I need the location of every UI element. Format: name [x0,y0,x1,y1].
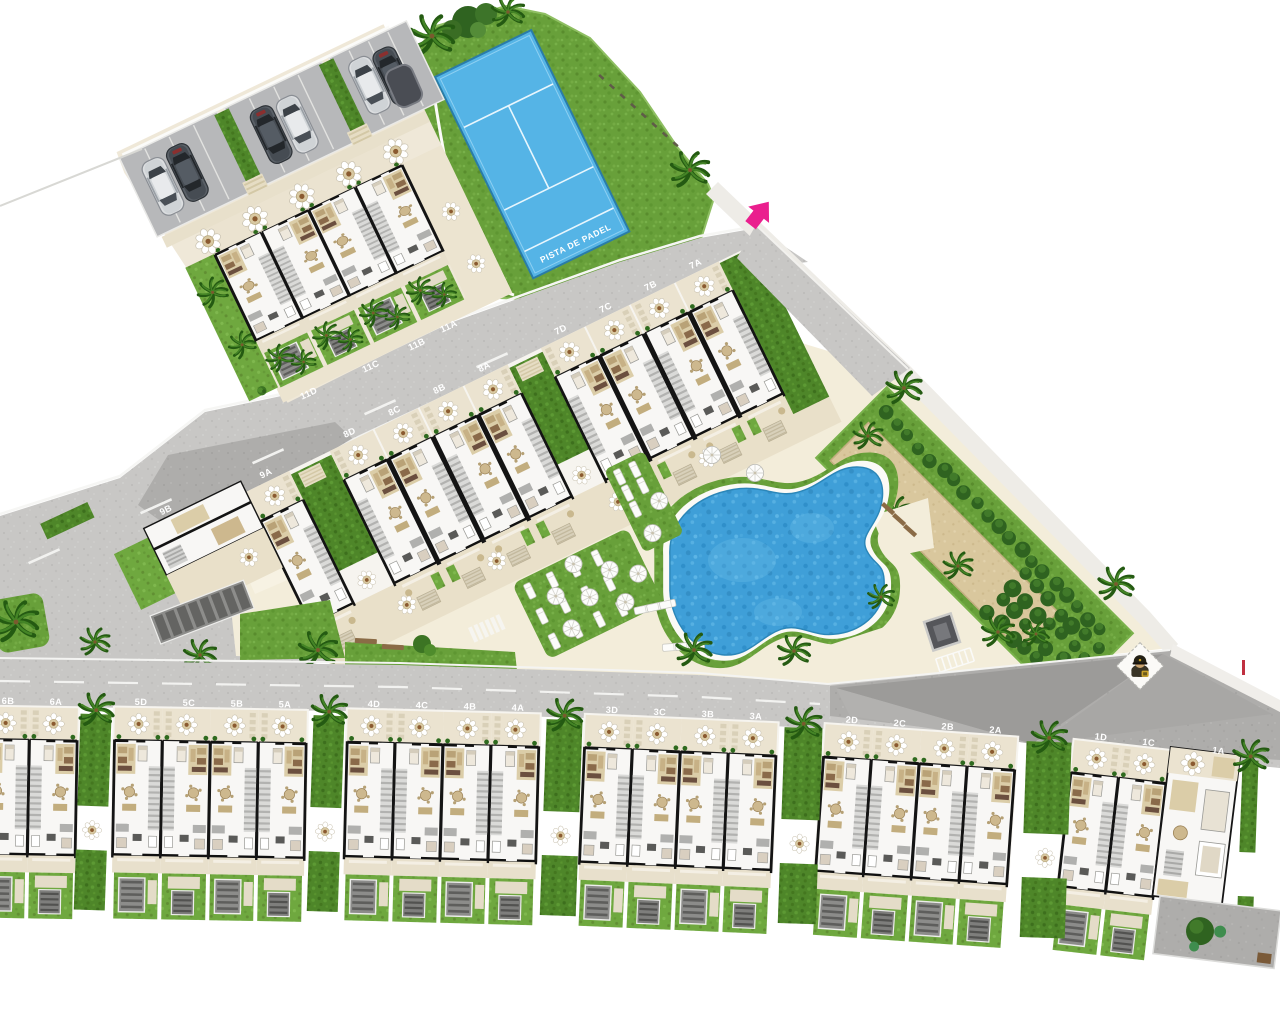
svg-text:5A: 5A [279,699,292,709]
svg-text:2B: 2B [941,721,954,732]
svg-text:1A: 1A [1212,745,1226,756]
svg-text:5C: 5C [183,698,196,708]
svg-text:1D: 1D [1094,731,1108,742]
svg-text:3C: 3C [653,707,666,718]
svg-text:3A: 3A [749,711,762,722]
svg-text:6A: 6A [50,697,63,707]
svg-text:4C: 4C [416,700,429,710]
svg-text:1C: 1C [1142,737,1156,748]
svg-text:6B: 6B [2,696,15,706]
svg-text:3D: 3D [606,705,619,716]
svg-text:5D: 5D [135,697,148,707]
svg-text:2A: 2A [989,725,1002,736]
svg-text:5B: 5B [231,699,244,709]
svg-text:4D: 4D [368,699,381,709]
svg-text:3B: 3B [701,709,714,720]
svg-text:4B: 4B [464,701,477,711]
svg-text:2D: 2D [845,715,858,726]
svg-text:2C: 2C [893,718,906,729]
svg-text:4A: 4A [512,703,525,713]
